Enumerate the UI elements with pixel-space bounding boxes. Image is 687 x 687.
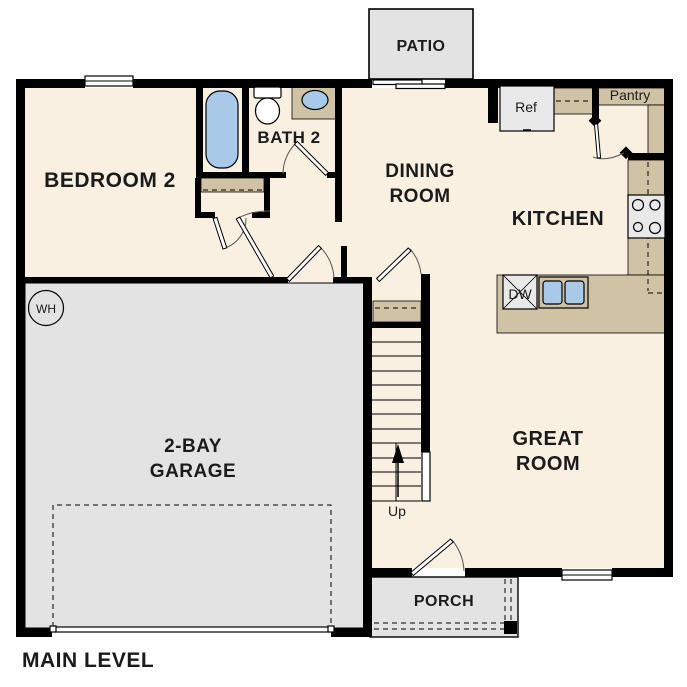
wall-segment <box>16 628 52 637</box>
sliding-door-panel <box>396 84 445 89</box>
room-label-garage-1: 2-BAY <box>164 436 222 457</box>
garage-door-end <box>50 626 56 632</box>
room-label-porch: PORCH <box>414 593 474 610</box>
toilet-bowl-icon <box>256 98 280 124</box>
room-label-dining-1: DINING <box>385 161 455 182</box>
counter-below-stove <box>628 238 665 275</box>
counter-above-stove <box>628 160 665 195</box>
dining-wall <box>335 79 342 222</box>
room-label-dining-2: ROOM <box>389 186 450 207</box>
floor-plan-page: BEDROOM 2 BATH 2 DINING ROOM KITCHEN GRE… <box>0 0 687 687</box>
floor-plan: BEDROOM 2 BATH 2 DINING ROOM KITCHEN GRE… <box>0 0 687 687</box>
closet-wall <box>195 212 215 218</box>
stair-closet-shelf <box>373 301 421 322</box>
stair-wall <box>421 274 430 452</box>
garage-door-icon <box>55 627 329 632</box>
room-label-patio: PATIO <box>396 38 445 55</box>
sink-basin <box>565 281 584 304</box>
pantry-label: Pantry <box>610 87 650 103</box>
wall-segment <box>465 568 562 577</box>
hall-wall-stub <box>341 246 347 277</box>
garage-door-end <box>328 626 334 632</box>
stair-landing-wall <box>372 322 421 328</box>
bathtub-icon <box>206 91 238 168</box>
wall-segment <box>664 79 673 577</box>
toilet-tank-icon <box>254 87 281 98</box>
porch-post <box>504 621 517 634</box>
room-label-great-2: ROOM <box>516 453 580 475</box>
pantry-wall <box>628 153 665 160</box>
bath-wall <box>196 172 286 178</box>
stair-handrail <box>422 452 430 501</box>
refrigerator-label: Ref <box>515 99 537 115</box>
garage-east-wall <box>363 277 372 637</box>
room-label-bedroom2: BEDROOM 2 <box>44 169 176 192</box>
room-label-bath2: BATH 2 <box>257 128 320 147</box>
bath-wall <box>327 172 341 178</box>
garage-wall <box>16 277 288 283</box>
sink-basin <box>543 281 562 304</box>
kitchen-wall-stub <box>488 79 498 123</box>
room-label-great-1: GREAT <box>512 428 583 450</box>
room-label-garage-2: GARAGE <box>150 461 236 482</box>
pantry-shelf-side <box>648 105 665 160</box>
tub-alcove-wall <box>242 88 249 172</box>
room-label-kitchen: KITCHEN <box>512 208 604 230</box>
wall-segment <box>16 79 85 88</box>
stairs-up-label: Up <box>388 503 406 519</box>
level-title: MAIN LEVEL <box>22 649 154 672</box>
tub-alcove-wall <box>196 88 203 172</box>
dishwasher-label: DW <box>508 286 532 302</box>
bath-sink-icon <box>302 91 328 110</box>
closet-wall <box>252 212 270 218</box>
water-heater-label: WH <box>36 302 56 316</box>
wall-segment <box>612 568 665 577</box>
wall-segment <box>16 79 25 637</box>
